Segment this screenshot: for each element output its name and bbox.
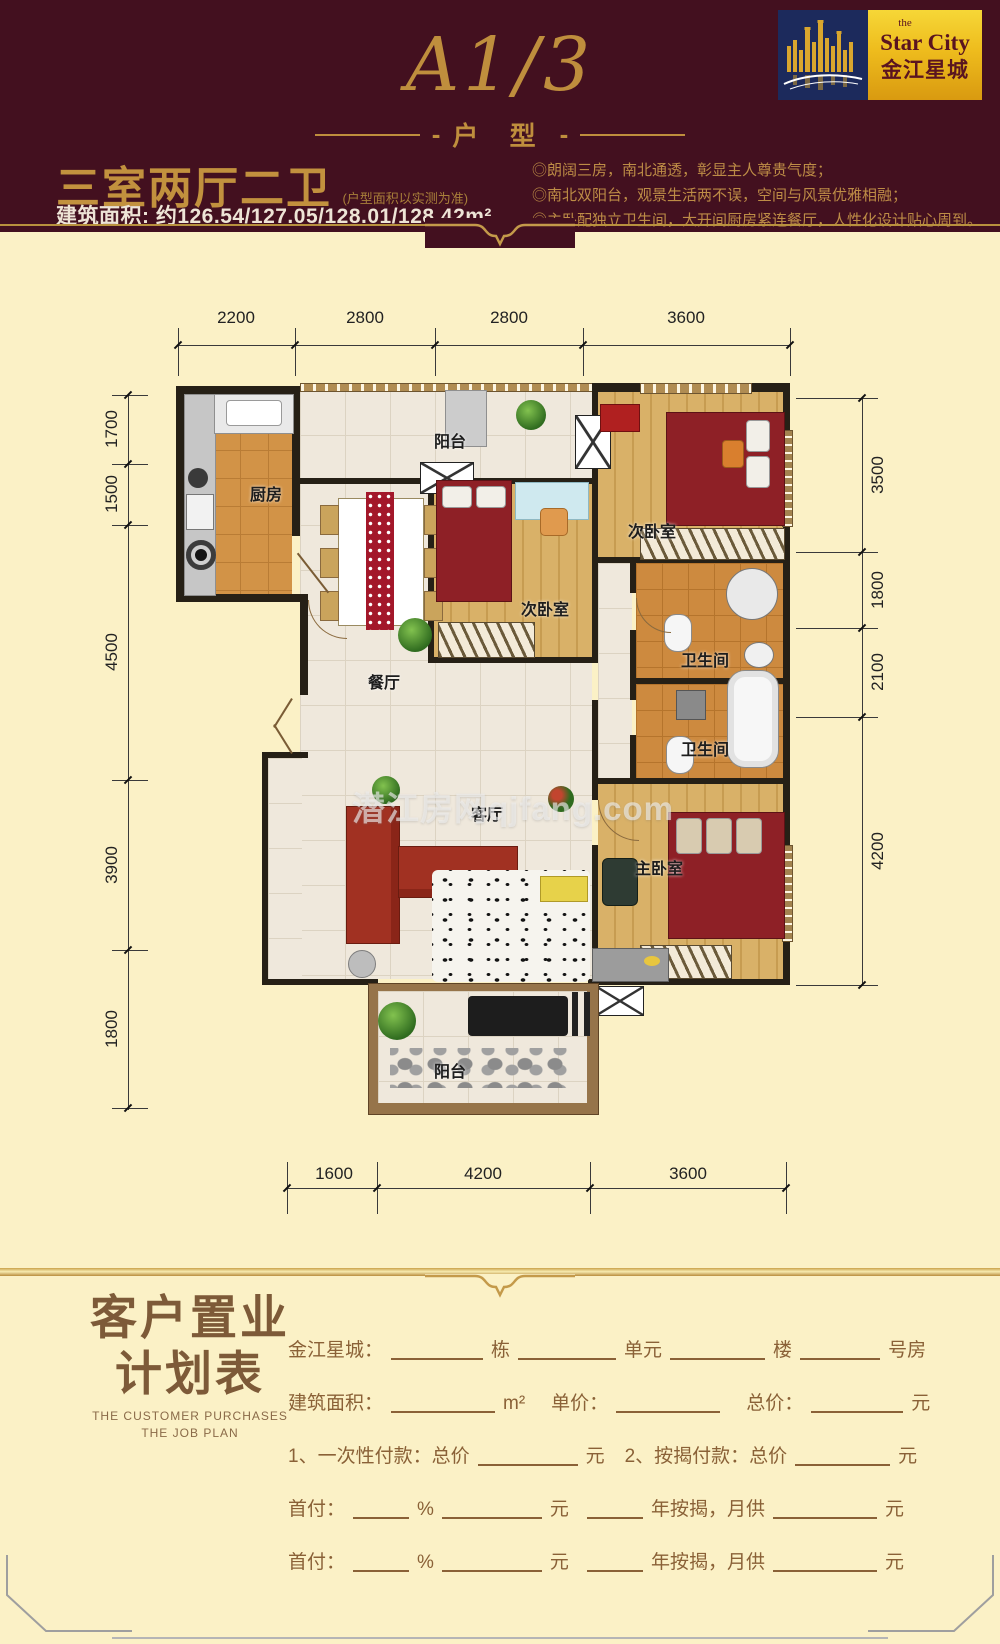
dim-tick	[796, 717, 878, 718]
form-rows: 金江星城：栋单元楼号房建筑面积：m²单价：总价：元1、一次性付款：总价元2、按揭…	[288, 1338, 968, 1574]
dim-tick	[796, 552, 878, 553]
barbell	[584, 992, 590, 1036]
pillow	[676, 818, 702, 854]
dim-tick	[790, 328, 791, 376]
brand-wordmark: the Star City 金江星城	[868, 10, 982, 100]
ornament-bracket	[425, 218, 575, 253]
dim-tick	[112, 780, 148, 781]
feature-list: ◎朗阔三房，南北通透，彰显主人尊贵气度；◎南北双阳台，观景生活两不误，空间与风景…	[532, 158, 982, 233]
form-label: 首付：	[288, 1547, 345, 1574]
dim-right-3: 2100	[868, 653, 888, 691]
wall	[176, 386, 300, 394]
dim-tick	[112, 395, 148, 396]
pillow	[736, 818, 762, 854]
room-label-bath-top: 卫生间	[681, 647, 729, 671]
dim-tick	[112, 950, 148, 951]
form-label: 元	[911, 1388, 930, 1415]
plant-icon	[378, 1002, 416, 1040]
blank-line	[773, 1497, 877, 1519]
wall	[176, 386, 184, 602]
corner-flourish	[4, 1555, 134, 1640]
dining-chair	[320, 548, 339, 578]
coffee-table	[540, 876, 588, 902]
wall	[262, 979, 378, 985]
dim-left-3: 4500	[102, 633, 122, 671]
entry-door-leaf	[273, 698, 293, 728]
dim-left-1: 1700	[102, 410, 122, 448]
entry-door-leaf	[273, 724, 293, 754]
corner-flourish	[866, 1555, 996, 1640]
chair	[540, 508, 568, 536]
form-row-1: 金江星城：栋单元楼号房	[288, 1338, 968, 1362]
kitchen-stove	[186, 494, 214, 530]
room-label-bath-bottom: 卫生间	[681, 736, 729, 760]
logo-name-en: Star City	[868, 31, 982, 54]
sink-basin	[226, 400, 282, 426]
room-label-balcony-bottom: 阳台	[434, 1058, 466, 1082]
form-label: 2、按揭付款：总价	[625, 1441, 788, 1468]
wall	[300, 600, 308, 695]
wall	[630, 735, 636, 779]
side-table	[348, 950, 376, 978]
form-label: 年按揭，月供	[651, 1547, 765, 1574]
blank-line	[353, 1497, 409, 1519]
dim-tick	[796, 628, 878, 629]
dim-tick	[112, 1108, 148, 1109]
kitchen-wok	[186, 540, 216, 570]
unit-label-row: - 户 型 -	[0, 116, 1000, 153]
exercise-bench	[468, 996, 568, 1036]
room-label-dining: 餐厅	[368, 669, 400, 693]
tv-cabinet	[600, 404, 640, 432]
blank-line	[670, 1338, 765, 1360]
dim-bottom-2: 4200	[464, 1164, 502, 1184]
barbell	[572, 992, 578, 1036]
dim-right-1: 3500	[868, 456, 888, 494]
form-label: m²	[503, 1393, 525, 1415]
dining-chair	[320, 505, 339, 535]
wall	[262, 752, 268, 985]
rule-line	[315, 134, 420, 136]
ac-platform-x-box	[596, 986, 644, 1016]
accent-pillow	[722, 440, 744, 468]
hall-floor	[598, 563, 632, 778]
dim-line-left	[128, 395, 129, 1110]
room-label-master: 主卧室	[635, 855, 683, 879]
form-row-4: 首付：%元年按揭，月供元	[288, 1497, 968, 1521]
decor-item	[644, 956, 660, 966]
pillow	[476, 486, 506, 508]
form-label: 单价：	[551, 1388, 608, 1415]
dim-right-4: 4200	[868, 832, 888, 870]
form-label: 栋	[491, 1335, 510, 1362]
form-label: 金江星城：	[288, 1335, 383, 1362]
blank-line	[616, 1391, 720, 1413]
form-label: 首付：	[288, 1494, 345, 1521]
brand-logo: the Star City 金江星城	[778, 10, 982, 100]
form-label: 元	[550, 1494, 569, 1521]
blank-line	[587, 1497, 643, 1519]
header-banner: A1/3 - 户 型 - 三室两厅二卫 (户型面积以实测为准) 建筑面积: 约1…	[0, 0, 1000, 232]
plant-icon	[398, 618, 432, 652]
dim-line-top	[178, 345, 790, 346]
blank-line	[442, 1550, 542, 1572]
room-label-kitchen: 厨房	[250, 481, 282, 505]
dim-tick	[435, 328, 436, 376]
feature-item-2: ◎南北双阳台，观景生活两不误，空间与风景优雅相融；	[532, 183, 982, 208]
ornament-bracket	[425, 1274, 575, 1309]
pillow	[706, 818, 732, 854]
shower-icon	[726, 568, 778, 620]
bathtub-icon	[727, 670, 779, 768]
blank-line	[773, 1550, 877, 1572]
form-title: 客户置业 计划表	[70, 1290, 310, 1403]
logo-the: the	[828, 18, 982, 29]
dim-tick	[112, 525, 148, 526]
window	[640, 383, 752, 394]
form-label: 号房	[888, 1335, 926, 1362]
wall	[262, 752, 308, 758]
pillow	[746, 456, 770, 488]
form-label: 元	[586, 1441, 605, 1468]
blank-line	[442, 1497, 542, 1519]
plant-icon	[516, 400, 546, 430]
dim-tick	[178, 328, 179, 376]
dim-tick	[796, 985, 878, 986]
blank-line	[587, 1550, 643, 1572]
flyer-page: A1/3 - 户 型 - 三室两厅二卫 (户型面积以实测为准) 建筑面积: 约1…	[0, 0, 1000, 1644]
dim-line-bottom	[287, 1188, 787, 1189]
dim-left-4: 3900	[102, 846, 122, 884]
site-watermark: 潜江房网qjfang.com	[352, 782, 674, 830]
form-label: 建筑面积：	[288, 1388, 383, 1415]
form-subtitle-line2: THE JOB PLAN	[141, 1426, 238, 1440]
blank-line	[478, 1444, 578, 1466]
pillow	[442, 486, 472, 508]
dim-top-4: 3600	[667, 308, 705, 328]
form-label: 单元	[624, 1335, 662, 1362]
armchair	[602, 858, 638, 906]
dim-tick	[112, 464, 148, 465]
blank-line	[800, 1338, 880, 1360]
wall	[630, 563, 636, 593]
blank-line	[391, 1338, 483, 1360]
form-label: 年按揭，月供	[651, 1494, 765, 1521]
dresser	[592, 948, 669, 982]
logo-name-cn: 金江星城	[868, 60, 982, 81]
wardrobe	[438, 622, 535, 658]
unit-type-label: 户 型	[452, 116, 547, 153]
dim-top-3: 2800	[490, 308, 528, 328]
form-row-2: 建筑面积：m²单价：总价：元	[288, 1391, 968, 1415]
feature-item-3: ◎主卧配独立卫生间，大开间厨房紧连餐厅，人性化设计贴心周到。	[532, 208, 982, 233]
blank-line	[795, 1444, 890, 1466]
dim-left-2: 1500	[102, 475, 122, 513]
form-title-line2: 计划表	[115, 1347, 265, 1400]
dim-tick	[583, 328, 584, 376]
dim-top-2: 2800	[346, 308, 384, 328]
table-runner	[366, 492, 394, 630]
form-label: 元	[550, 1547, 569, 1574]
form-row-3: 1、一次性付款：总价元2、按揭付款：总价元	[288, 1444, 968, 1468]
living-extension-floor	[268, 758, 302, 979]
blank-line	[518, 1338, 616, 1360]
dim-top-1: 2200	[217, 308, 255, 328]
form-label: %	[417, 1499, 434, 1521]
dim-tick	[796, 398, 878, 399]
form-subtitle-line1: THE CUSTOMER PURCHASES	[92, 1409, 288, 1423]
blank-line	[811, 1391, 903, 1413]
room-label-balcony-top: 阳台	[434, 428, 466, 452]
form-label: 楼	[773, 1335, 792, 1362]
dash: -	[560, 119, 569, 150]
form-label: %	[417, 1552, 434, 1574]
form-subtitle: THE CUSTOMER PURCHASES THE JOB PLAN	[70, 1408, 310, 1442]
dim-right-2: 1800	[868, 571, 888, 609]
form-label: 1、一次性付款：总价	[288, 1441, 470, 1468]
form-label: 元	[885, 1494, 904, 1521]
feature-item-1: ◎朗阔三房，南北通透，彰显主人尊贵气度；	[532, 158, 982, 183]
blank-line	[391, 1391, 495, 1413]
form-label: 元	[898, 1441, 917, 1468]
pillow	[746, 420, 770, 452]
dim-tick	[295, 328, 296, 376]
wall	[630, 630, 636, 700]
shower-head	[676, 690, 706, 720]
bottom-border-line	[112, 1637, 888, 1639]
blank-line	[353, 1550, 409, 1572]
dim-line-right	[862, 398, 863, 985]
dim-bottom-1: 1600	[315, 1164, 353, 1184]
rule-line	[580, 134, 685, 136]
room-label-bedroom-mid: 次卧室	[521, 596, 569, 620]
sink-icon	[744, 642, 774, 668]
room-label-bedroom-right: 次卧室	[628, 518, 676, 542]
kitchen-burner	[188, 468, 208, 488]
pebbles	[390, 1048, 575, 1088]
form-label: 总价：	[746, 1388, 803, 1415]
dim-left-5: 1800	[102, 1010, 122, 1048]
dash: -	[432, 119, 441, 150]
form-title-line1: 客户置业	[90, 1291, 290, 1344]
dim-bottom-3: 3600	[669, 1164, 707, 1184]
